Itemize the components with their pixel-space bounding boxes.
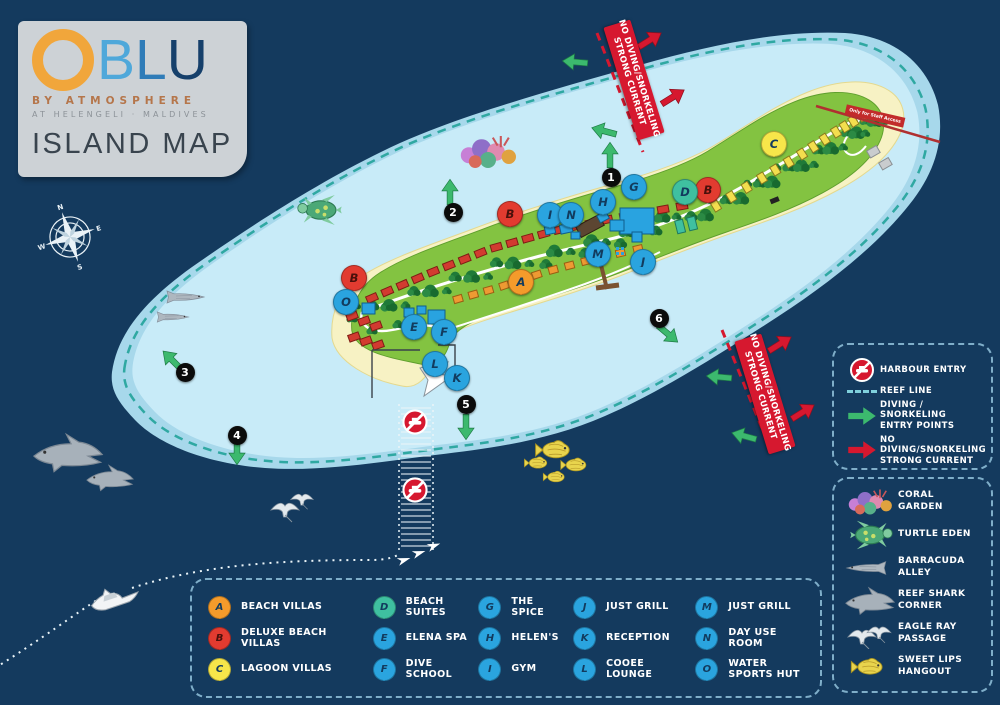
dive-site-number-5: 5	[457, 395, 476, 414]
legend-place-label: DELUXE BEACH VILLAS	[241, 627, 363, 650]
sweet-lips-icon	[524, 457, 546, 468]
legend-places-column: DBEACH SUITESEELENA SPAFDIVE SCHOOL	[373, 592, 469, 684]
brand-location: AT HELENGELI · MALDIVES	[32, 110, 233, 119]
svg-text:S: S	[76, 263, 83, 272]
legend-place-label: WATER SPORTS HUT	[728, 658, 804, 681]
map-pin-deluxe-beach-villas: B	[341, 265, 367, 291]
legend-pin-O: O	[695, 658, 718, 681]
legend-place-G: GTHE SPICE	[478, 592, 563, 622]
dive-site-number-6: 6	[650, 309, 669, 328]
map-pin-beach-suites: D	[672, 179, 698, 205]
legend-place-label: JUST GRILL	[728, 601, 791, 612]
map-pin-deluxe-beach-villas: B	[695, 177, 721, 203]
legend-symbol-label: REEF LINE	[880, 386, 932, 397]
legend-marine-label: SWEET LIPS HANGOUT	[898, 655, 982, 678]
legend-pin-H: H	[478, 627, 501, 650]
map-pin-elena-spa: E	[401, 314, 427, 340]
legend-place-label: DIVE SCHOOL	[406, 658, 469, 681]
legend-marine-row: BARRACUDA ALLEY	[842, 551, 983, 584]
brand-card: BLU BY ATMOSPHERE AT HELENGELI · MALDIVE…	[18, 21, 247, 177]
legend-marine-row: TURTLE EDEN	[842, 518, 983, 551]
eagle-ray-icon	[271, 503, 299, 522]
legend-place-label: DAY USE ROOM	[728, 627, 804, 650]
map-pin-water-sports-hut: O	[333, 289, 359, 315]
legend-place-B: BDELUXE BEACH VILLAS	[208, 623, 363, 653]
diving-entry-arrow-icon	[844, 407, 880, 425]
brand-letter-u: U	[167, 28, 208, 92]
channel-direction-chevrons	[397, 540, 442, 566]
barracuda-icon	[842, 553, 898, 583]
legend-place-J: JJUST GRILL	[573, 592, 685, 622]
legend-pin-L: L	[573, 658, 596, 681]
legend-place-D: DBEACH SUITES	[373, 592, 469, 622]
legend-pin-A: A	[208, 596, 231, 619]
brand-letter-b: B	[97, 28, 135, 92]
legend-place-label: RECEPTION	[606, 632, 670, 643]
legend-symbol-row: DIVING / SNORKELING ENTRY POINTS	[844, 400, 981, 432]
map-pin-just-grill-jetty: M	[585, 241, 611, 267]
map-pin-reception: K	[444, 365, 470, 391]
legend-pin-G: G	[478, 596, 501, 619]
map-pin-beach-villas: A	[508, 269, 534, 295]
brand-byline: BY ATMOSPHERE	[32, 95, 233, 107]
reef-shark-icon	[34, 434, 102, 471]
legend-place-N: NDAY USE ROOM	[695, 623, 804, 653]
legend-marine-label: BARRACUDA ALLEY	[898, 556, 982, 579]
sweet-lips-icon	[536, 441, 570, 458]
legend-pin-K: K	[573, 627, 596, 650]
legend-pin-C: C	[208, 658, 231, 681]
reef-line-icon	[844, 390, 880, 393]
legend-symbol-row: REEF LINE	[844, 386, 981, 397]
sweet-lips-icon	[561, 458, 586, 471]
legend-place-label: GYM	[511, 663, 536, 674]
svg-text:W: W	[37, 242, 47, 252]
map-pin-the-spice: G	[621, 174, 647, 200]
legend-place-label: BEACH VILLAS	[241, 601, 322, 612]
legend-symbols-box: HARBOUR ENTRYREEF LINEDIVING / SNORKELIN…	[832, 343, 993, 470]
legend-places-column: JJUST GRILLKRECEPTIONLCOOEE LOUNGE	[573, 592, 685, 684]
legend-places-column: GTHE SPICEHHELEN'SIGYM	[478, 592, 563, 684]
sweet-lips-icon	[842, 652, 898, 682]
map-pin-helens: H	[590, 189, 616, 215]
legend-marine-label: CORAL GARDEN	[898, 490, 982, 513]
sweet-lips-icon	[543, 471, 564, 482]
legend-place-H: HHELEN'S	[478, 623, 563, 653]
legend-pin-F: F	[373, 658, 396, 681]
legend-place-label: COOEE LOUNGE	[606, 658, 685, 681]
legend-place-label: HELEN'S	[511, 632, 558, 643]
legend-symbol-row: NO DIVING/SNORKELING STRONG CURRENT	[844, 435, 981, 467]
legend-pin-D: D	[373, 596, 396, 619]
legend-place-label: JUST GRILL	[606, 601, 669, 612]
map-pin-lagoon-villas: C	[761, 131, 787, 157]
eagle-ray-icon	[842, 619, 898, 649]
legend-place-label: LAGOON VILLAS	[241, 663, 332, 674]
compass-rose-icon: N E S W	[27, 194, 112, 282]
oblu-o-ring-icon	[32, 29, 94, 91]
legend-pin-J: J	[573, 596, 596, 619]
map-pin-deluxe-beach-villas: B	[497, 201, 523, 227]
legend-marine-label: REEF SHARK CORNER	[898, 589, 982, 612]
legend-pin-B: B	[208, 627, 231, 650]
page-title: ISLAND MAP	[32, 128, 233, 161]
legend-place-A: ABEACH VILLAS	[208, 592, 363, 622]
legend-pin-E: E	[373, 627, 396, 650]
legend-symbol-label: HARBOUR ENTRY	[880, 365, 967, 376]
legend-place-label: BEACH SUITES	[406, 596, 469, 619]
brand-letter-l: L	[135, 28, 167, 92]
legend-place-I: IGYM	[478, 654, 563, 684]
legend-place-L: LCOOEE LOUNGE	[573, 654, 685, 684]
legend-symbol-label: DIVING / SNORKELING ENTRY POINTS	[880, 400, 981, 432]
legend-place-C: CLAGOON VILLAS	[208, 654, 363, 684]
reef-shark-icon	[87, 465, 133, 490]
legend-places-column: MJUST GRILLNDAY USE ROOMOWATER SPORTS HU…	[695, 592, 804, 684]
legend-place-K: KRECEPTION	[573, 623, 685, 653]
brand-letters: BLU	[97, 32, 208, 88]
legend-marine-row: REEF SHARK CORNER	[842, 584, 983, 617]
legend-pin-I: I	[478, 658, 501, 681]
island-map-poster: N E S W BLU BY ATMOSPHERE AT HELENGELI ·…	[0, 0, 1000, 705]
legend-marine-label: TURTLE EDEN	[898, 529, 982, 541]
legend-place-label: ELENA SPA	[406, 632, 468, 643]
dive-site-number-1: 1	[602, 168, 621, 187]
legend-marine-row: SWEET LIPS HANGOUT	[842, 650, 983, 683]
map-pin-dive-school: F	[431, 319, 457, 345]
map-pin-day-use-room: N	[558, 202, 584, 228]
boat-icon	[89, 582, 141, 613]
legend-places-box: ABEACH VILLASBDELUXE BEACH VILLASCLAGOON…	[190, 578, 822, 698]
legend-symbol-row: HARBOUR ENTRY	[844, 357, 981, 383]
harbour-no-entry-icon	[844, 357, 880, 383]
legend-marine-row: EAGLE RAY PASSAGE	[842, 617, 983, 650]
dive-site-number-4: 4	[228, 426, 247, 445]
legend-place-label: THE SPICE	[511, 596, 563, 619]
legend-marine-label: EAGLE RAY PASSAGE	[898, 622, 982, 645]
svg-text:N: N	[56, 203, 64, 212]
legend-pin-N: N	[695, 627, 718, 650]
legend-marine-row: CORAL GARDEN	[842, 485, 983, 518]
legend-places-column: ABEACH VILLASBDELUXE BEACH VILLASCLAGOON…	[208, 592, 363, 684]
no-diving-arrow-icon	[844, 441, 880, 459]
legend-pin-M: M	[695, 596, 718, 619]
dive-site-number-2: 2	[444, 203, 463, 222]
dive-site-number-3: 3	[176, 363, 195, 382]
reef-shark-icon	[842, 586, 898, 616]
turtle-icon	[842, 520, 898, 550]
legend-symbol-label: NO DIVING/SNORKELING STRONG CURRENT	[880, 435, 986, 467]
legend-place-O: OWATER SPORTS HUT	[695, 654, 804, 684]
coral-icon	[842, 487, 898, 517]
brand-logo: BLU	[32, 31, 233, 89]
map-pin-just-grill: J	[630, 249, 656, 275]
legend-place-M: MJUST GRILL	[695, 592, 804, 622]
legend-place-E: EELENA SPA	[373, 623, 469, 653]
legend-place-F: FDIVE SCHOOL	[373, 654, 469, 684]
legend-marine-box: CORAL GARDENTURTLE EDENBARRACUDA ALLEYRE…	[832, 477, 993, 693]
svg-text:E: E	[95, 224, 102, 233]
